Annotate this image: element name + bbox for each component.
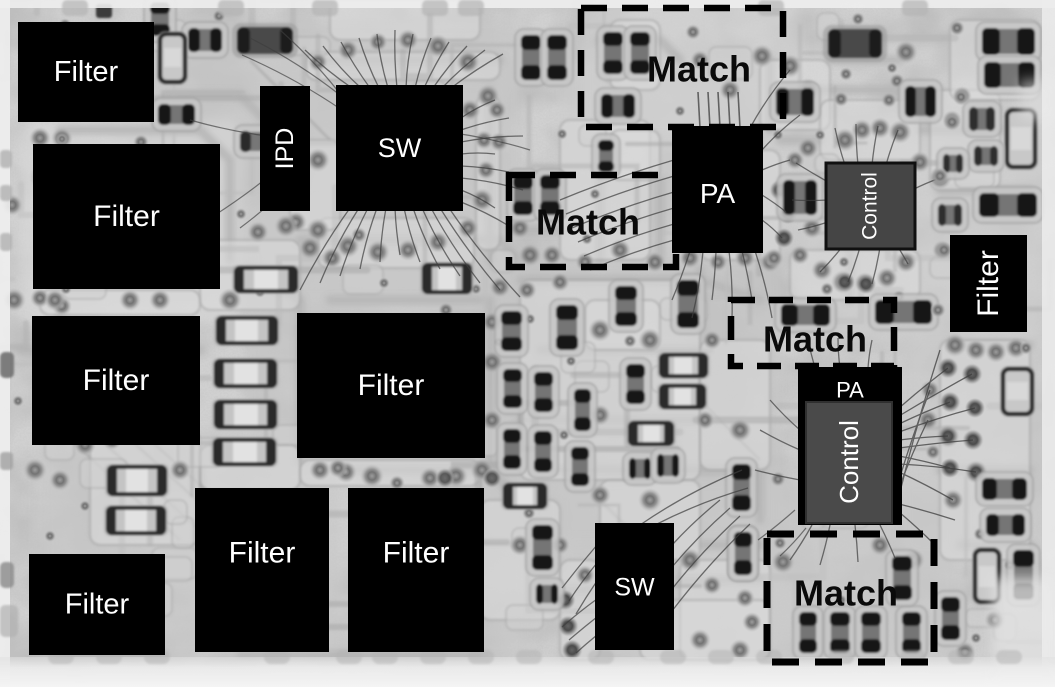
svg-text:SW: SW [378,133,422,163]
svg-text:PA: PA [836,378,864,403]
svg-text:Filter: Filter [229,537,296,570]
svg-text:Filter: Filter [65,589,130,621]
svg-text:SW: SW [614,574,655,602]
svg-text:Filter: Filter [358,369,425,402]
svg-text:Control: Control [834,420,864,504]
svg-text:Filter: Filter [972,250,1005,317]
svg-text:Match: Match [647,49,751,90]
svg-text:IPD: IPD [271,128,299,170]
svg-text:Control: Control [859,172,882,240]
svg-text:Filter: Filter [54,56,119,88]
svg-text:Filter: Filter [93,200,160,233]
svg-text:PA: PA [700,178,736,209]
svg-text:Match: Match [763,319,867,360]
svg-text:Filter: Filter [83,364,150,397]
svg-text:Filter: Filter [383,537,450,570]
svg-text:Match: Match [536,202,640,243]
svg-text:Match: Match [794,573,898,614]
